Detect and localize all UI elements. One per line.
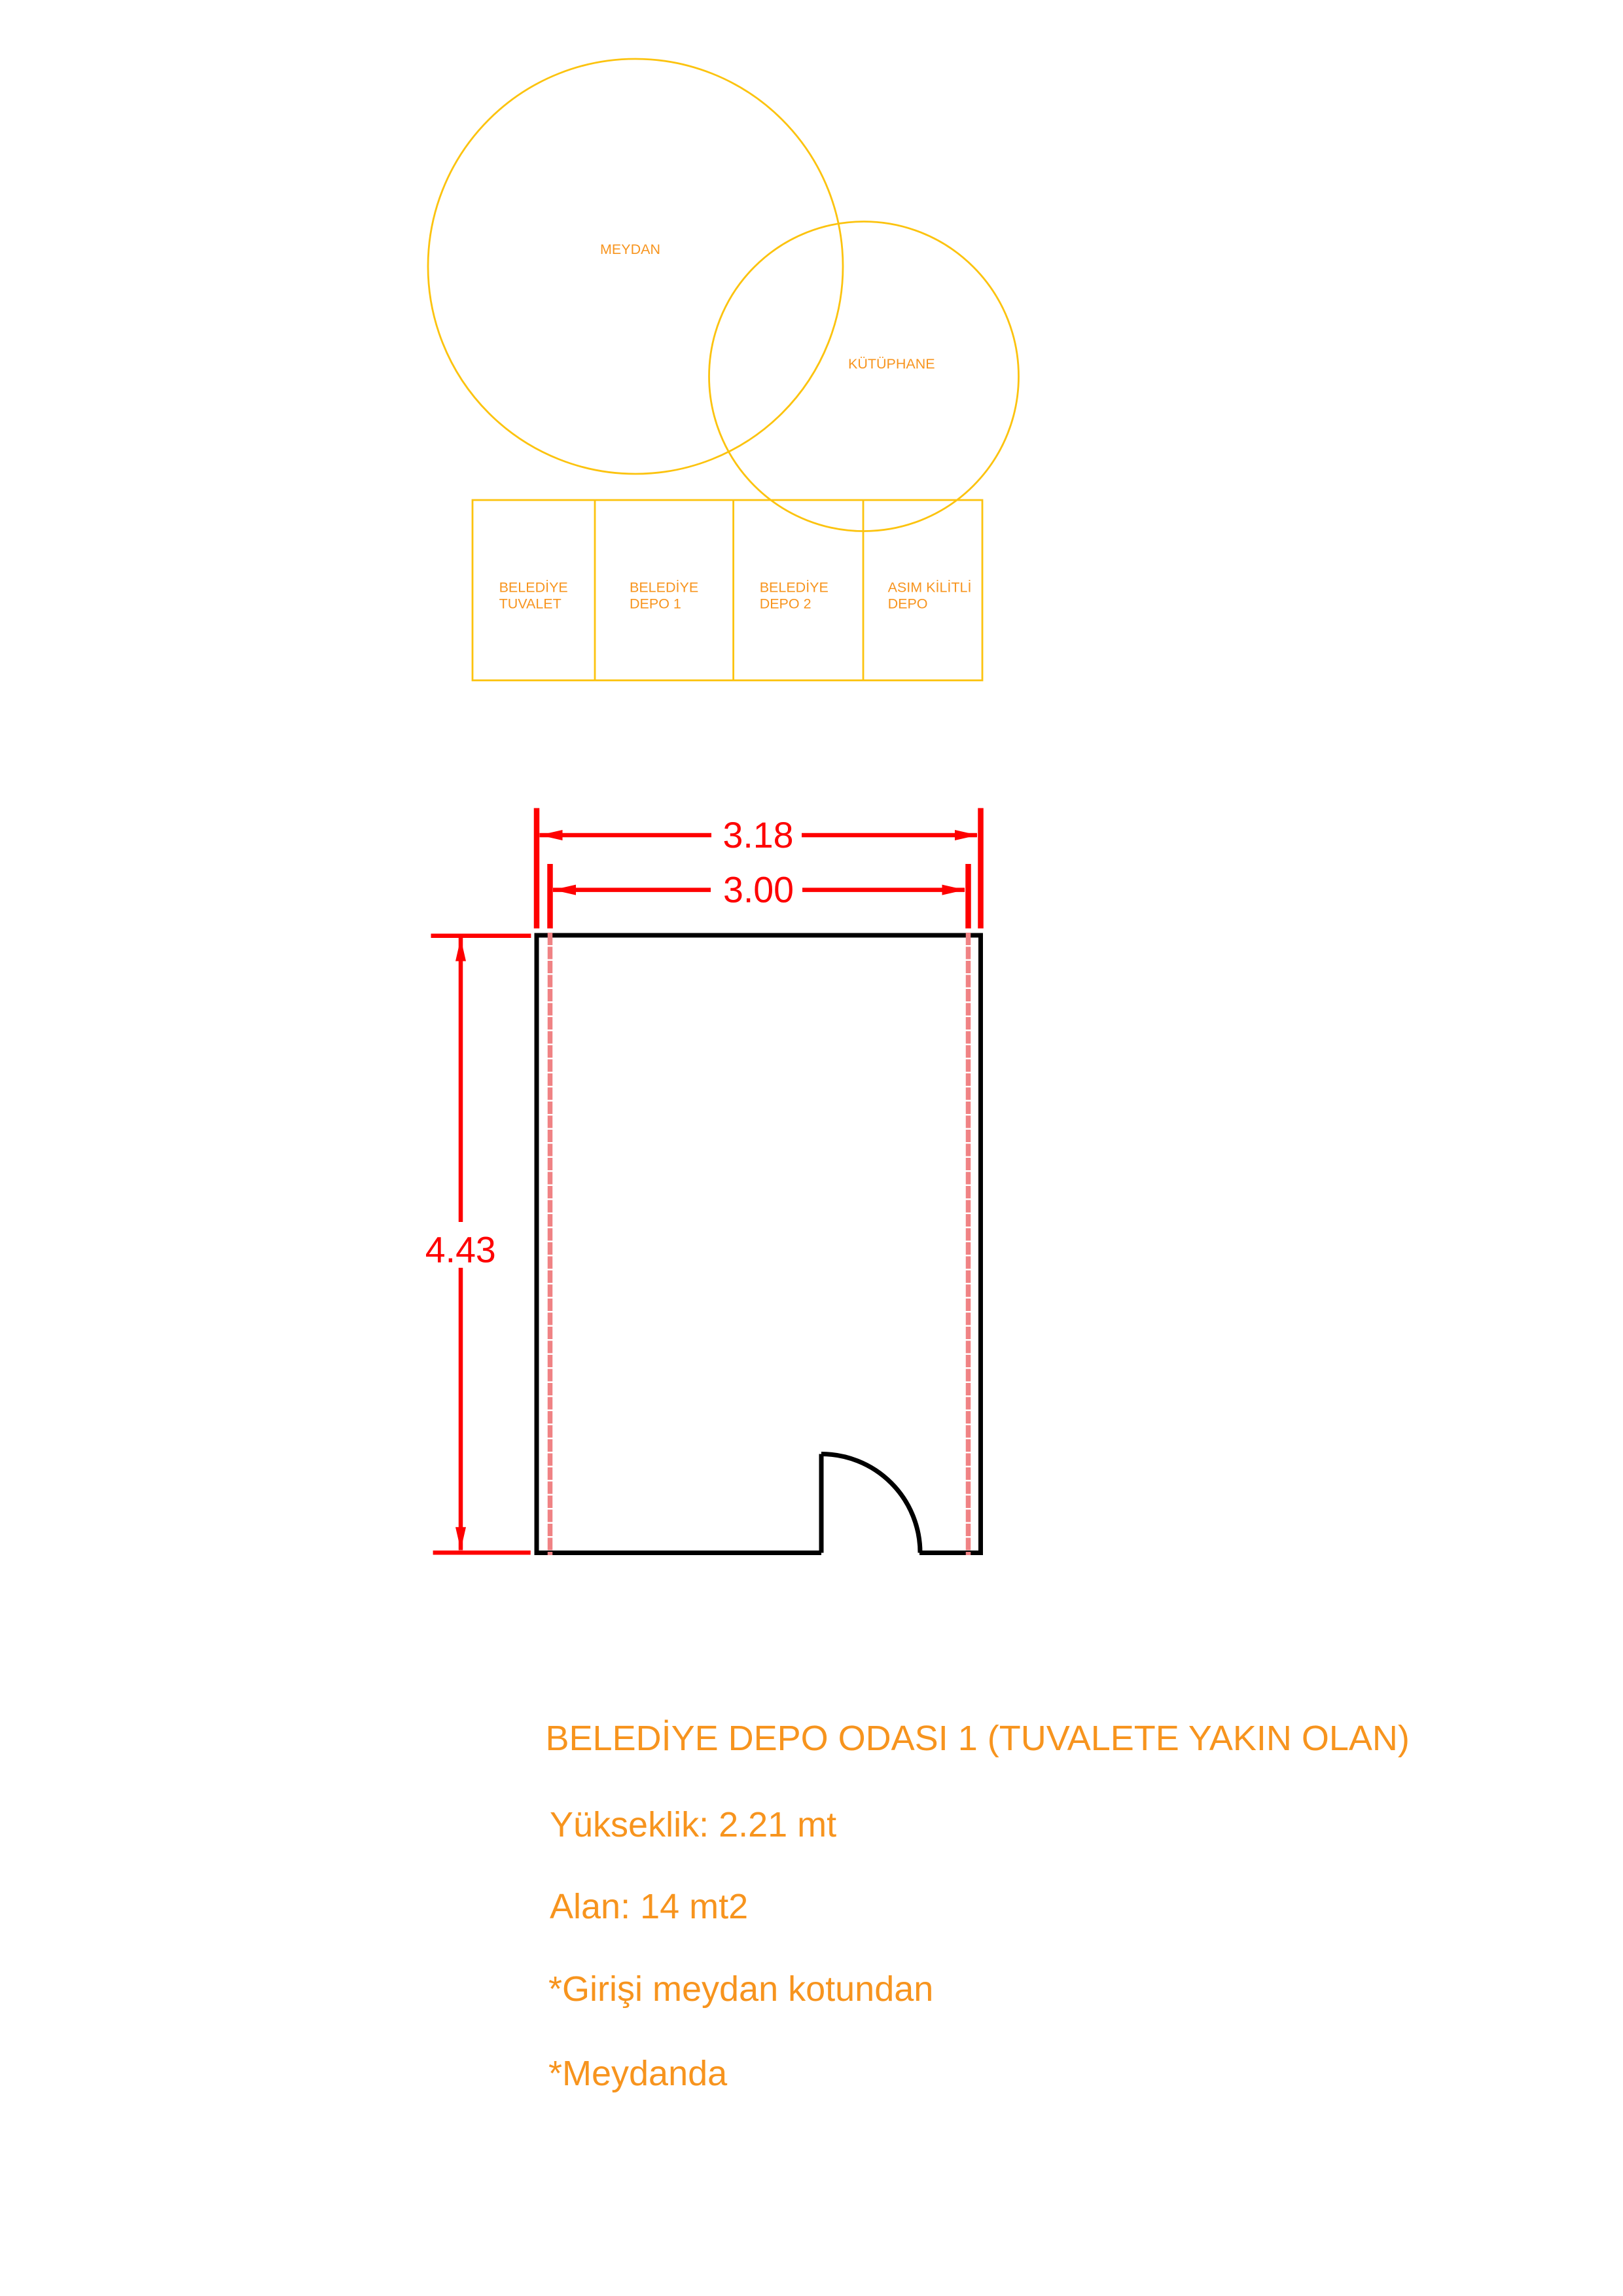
svg-text:BELEDİYE: BELEDİYE (760, 580, 829, 596)
svg-text:Yükseklik: 2.21 mt: Yükseklik: 2.21 mt (550, 1805, 836, 1844)
svg-text:DEPO 2: DEPO 2 (760, 596, 811, 611)
svg-text:4.43: 4.43 (425, 1230, 496, 1270)
svg-text:DEPO 1: DEPO 1 (630, 596, 681, 611)
svg-text:3.00: 3.00 (723, 870, 794, 910)
svg-text:DEPO: DEPO (888, 596, 928, 611)
svg-text:MEYDAN: MEYDAN (600, 242, 660, 257)
svg-text:ASIM KİLİTLİ: ASIM KİLİTLİ (888, 580, 972, 596)
svg-text:*Meydanda: *Meydanda (548, 2054, 728, 2093)
svg-text:*Girişi meydan kotundan: *Girişi meydan kotundan (548, 1969, 933, 2009)
svg-text:BELEDİYE: BELEDİYE (499, 580, 568, 596)
svg-text:TUVALET: TUVALET (499, 596, 562, 611)
svg-text:Alan: 14 mt2: Alan: 14 mt2 (550, 1887, 748, 1926)
svg-text:BELEDİYE: BELEDİYE (630, 580, 698, 596)
svg-text:KÜTÜPHANE: KÜTÜPHANE (848, 356, 935, 372)
svg-text:3.18: 3.18 (722, 815, 793, 855)
svg-text:BELEDİYE DEPO ODASI 1 (TUVALET: BELEDİYE DEPO ODASI 1 (TUVALETE YAKIN OL… (546, 1719, 1410, 1758)
